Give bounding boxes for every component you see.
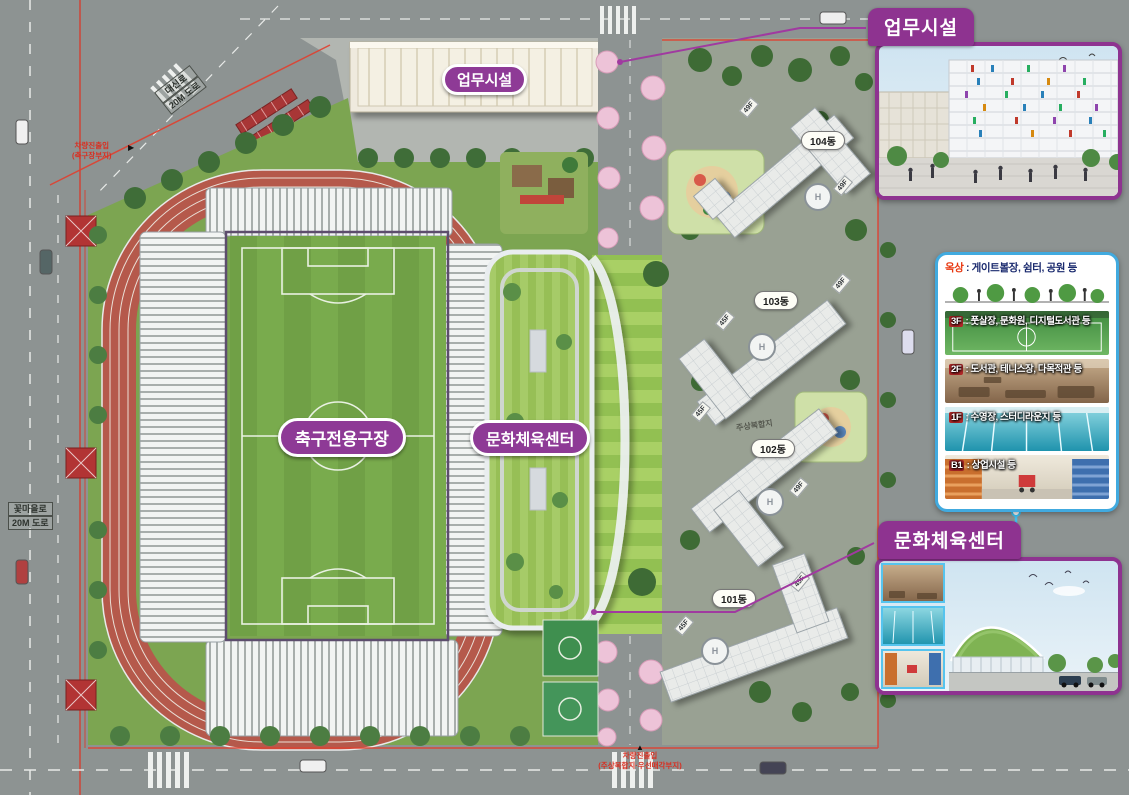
access-line2: (주상복합지·우선매각부지) [598,761,681,770]
access-line1: 차량진출입 [623,751,658,760]
program-photo-3f: 3F : 풋살장, 문화원, 디지털도서관 등 [945,311,1109,355]
arrow-right-icon: ▶ [128,144,134,151]
program-caption-3f: 3F : 풋살장, 문화원, 디지털도서관 등 [949,313,1090,327]
office-badge-on-plan: 업무시설 [442,64,527,95]
site-plan-image: 업무시설 축구전용구장 문화체육센터 104동 103동 102동 101동 4… [0,0,1129,795]
program-photo-b1: B1 : 상업시설 등 [945,455,1109,499]
culture-section-photo [879,561,1118,691]
access-line1: 차량진출입 [75,141,110,150]
culture-photo-panel [875,557,1122,695]
culture-center-badge: 문화체육센터 [470,420,590,456]
rooftop-illustration [945,275,1109,307]
program-caption-2f: 2F : 도서관, 테니스장, 다목적관 등 [949,361,1082,375]
apartment-label-102: 102동 [751,439,795,458]
road-label-kkotmaeul: 꽃마을로 20M 도로 [8,502,53,530]
program-photo-1f: 1F : 수영장, 스터디라운지 등 [945,407,1109,451]
wooden-play-structure [500,152,588,234]
office-photo [879,46,1118,196]
program-roof-text: : 게이트볼장, 쉼터, 공원 등 [964,262,1077,274]
floor-tag-roof: 옥상 [945,262,964,274]
apartment-label-103: 103동 [754,291,798,310]
program-caption-b1: B1 : 상업시설 등 [949,457,1016,471]
helipad-letter: H [763,495,777,509]
vehicle-access-label-nw: 차량진출입 (축구장부지) [72,141,112,161]
culture-callout-title: 문화체육센터 [878,521,1021,559]
program-caption-1f: 1F : 수영장, 스터디라운지 등 [949,409,1061,423]
program-photo-2f: 2F : 도서관, 테니스장, 다목적관 등 [945,359,1109,403]
helipad-letter: H [708,644,722,658]
arrow-up-icon: ▲ [560,744,720,751]
office-callout-title: 업무시설 [868,8,974,46]
program-roof-line: 옥상 : 게이트볼장, 쉼터, 공원 등 [945,260,1109,275]
road-name: 꽃마을로 [8,502,53,516]
apartment-label-104: 104동 [801,131,845,150]
stadium-badge: 축구전용구장 [278,418,406,457]
vehicle-access-label-south: ▲ 차량진출입 (주상복합지·우선매각부지) [560,744,720,771]
program-info-box: 옥상 : 게이트볼장, 쉼터, 공원 등 [935,252,1119,512]
helipad-letter: H [755,340,769,354]
office-photo-panel [875,42,1122,200]
apartment-label-101: 101동 [712,589,756,608]
helipad-letter: H [811,190,825,204]
access-line2: (축구장부지) [72,151,112,160]
road-size: 20M 도로 [8,516,53,530]
